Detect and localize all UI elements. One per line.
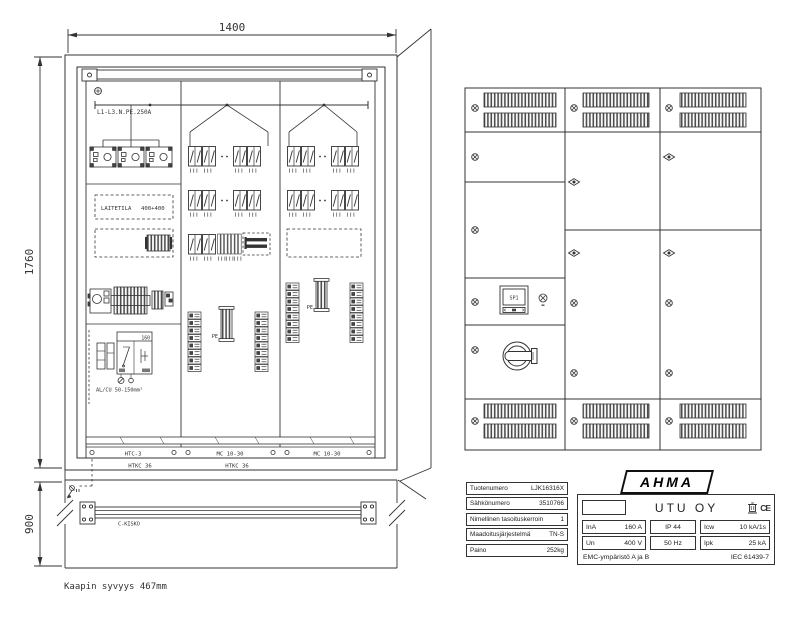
screw-icon (571, 370, 578, 377)
finned-block (111, 287, 150, 314)
rating-label: Icw (704, 524, 714, 531)
laitetila-size: 400+400 (141, 206, 165, 212)
breaker-icon (346, 191, 359, 211)
meter-device (88, 289, 111, 313)
spec-table: Tuotenumero LJK16316X Sähkönumero 351076… (466, 482, 568, 559)
rail-label-3: MC 10-30 (314, 452, 341, 458)
ratings-row-2: Un 400 V 50 Hz Ipk 25 kA (582, 536, 770, 550)
breaker-icon (302, 191, 315, 211)
spec-value: LJK16316X (531, 484, 564, 493)
spec-row: Maadoitusjärjestelmä TN-S (466, 528, 568, 541)
breaker-icon (203, 191, 216, 211)
screw-icon (472, 154, 479, 161)
breaker-icon (234, 191, 247, 211)
rating-cell: Ipk 25 kA (700, 536, 770, 550)
c-rail-label: C-KISKO (118, 522, 140, 528)
weee-bin-icon (747, 501, 758, 514)
dimension-height-1760: 1760 (23, 57, 62, 468)
dim-height-label: 1760 (23, 249, 36, 276)
dim-width-label: 1400 (219, 21, 246, 34)
screw-icon (571, 105, 578, 112)
terminal-strip (255, 312, 268, 372)
cable-spec: AL/CU 50-150mm² (96, 388, 143, 394)
breaker-icon (189, 235, 202, 255)
terminal-strip (286, 283, 299, 343)
frame-label-2: HTKC 36 (225, 464, 249, 470)
sp1-display: SP1 (500, 286, 528, 314)
rating-cell: IP 44 (650, 520, 696, 534)
nameplate-header: UTU OY CE (578, 495, 774, 518)
brand-logo: AHMA (620, 470, 714, 494)
screw-icon (472, 418, 479, 425)
spec-label: Sähkönumero (470, 499, 510, 508)
spec-label: Maadoitusjärjestelmä (470, 530, 530, 539)
terminal-strip (188, 312, 201, 372)
switch-rating: 160 (141, 336, 150, 342)
pe-label: PE (307, 305, 313, 311)
laitetila-label: LAITETILA (101, 206, 132, 212)
screw-icon (472, 347, 479, 354)
rating-label: Un (586, 540, 595, 547)
rating-value: 10 kA/1s (740, 524, 766, 531)
breaker-icon (332, 147, 345, 167)
spec-value: 252kg (547, 546, 564, 555)
spec-label: Tuotenumero (470, 484, 508, 493)
front-view: SP1 (465, 88, 761, 450)
ct-symbol (118, 147, 144, 167)
rating-cell: Icw 10 kA/1s (700, 520, 770, 534)
breaker-icon (288, 147, 301, 167)
dim-base-label: 900 (23, 514, 36, 534)
dimension-base-900: 900 (23, 482, 62, 566)
ct-symbol (146, 147, 172, 167)
breaker-icon (234, 147, 247, 167)
rating-value: 50 Hz (664, 540, 682, 547)
nameplate-footer: EMC-ympäristö A ja B IEC 61439-7 (578, 552, 774, 564)
breaker-icon (248, 147, 261, 167)
screw-icon (571, 300, 578, 307)
spec-value: 3510766 (539, 499, 564, 508)
screw-icon (666, 370, 673, 377)
cabinet-outline (65, 55, 397, 470)
spec-row: Nimellinen tasoituskerroin 1 (466, 513, 568, 526)
breaker-icon (203, 147, 216, 167)
c-rail: C-KISKO (80, 502, 376, 528)
spec-row: Sähkönumero 3510766 (466, 497, 568, 510)
ce-mark: CE (760, 503, 770, 513)
rail-label-2: MC 10-30 (217, 452, 244, 458)
breaker-icon (332, 191, 345, 211)
cabinet-open-door (397, 29, 431, 481)
sp1-label: SP1 (509, 296, 518, 302)
rating-value: IP 44 (665, 524, 681, 531)
rail-label-1: HTC-3 (125, 452, 142, 458)
frame-label-1: HTKC 36 (128, 464, 152, 470)
blank-plate (582, 500, 626, 515)
screw-icon (472, 105, 479, 112)
breaker-icon (346, 147, 359, 167)
emc-note: EMC-ympäristö A ja B (583, 554, 649, 561)
rating-cell: InA 160 A (582, 520, 646, 534)
spec-value: TN-S (549, 530, 564, 539)
rating-value: 400 V (624, 540, 642, 547)
rating-label: Ipk (704, 540, 713, 547)
breaker-icon (288, 191, 301, 211)
rating-label: InA (586, 524, 596, 531)
screw-icon (666, 418, 673, 425)
breaker-icon (189, 147, 202, 167)
depth-note: Kaapin syvyys 467mm (64, 582, 167, 592)
rating-cell: 50 Hz (650, 536, 696, 550)
spec-label: Nimellinen tasoituskerroin (470, 515, 543, 524)
screw-icon (571, 418, 578, 425)
rating-cell: Un 400 V (582, 536, 646, 550)
rating-value: 25 kA (749, 540, 766, 547)
standard-ref: IEC 61439-7 (731, 554, 769, 561)
spec-label: Paino (470, 546, 486, 555)
pe-label: PE (212, 334, 218, 340)
busbar-label: L1-L3.N.PE.250A (97, 109, 152, 116)
breaker-icon (189, 191, 202, 211)
breaker-icon (302, 147, 315, 167)
cad-drawing-sheet: 1400 1760 900 (0, 0, 800, 627)
screw-icon (666, 105, 673, 112)
dimension-width-1400: 1400 (68, 21, 396, 53)
small-device (165, 292, 173, 306)
screw-icon (666, 300, 673, 307)
screw-icon (472, 299, 479, 306)
breaker-icon (248, 191, 261, 211)
spec-row: Paino 252kg (466, 544, 568, 557)
terminal-strip (350, 283, 363, 343)
screw-icon (472, 227, 479, 234)
spec-row: Tuotenumero LJK16316X (466, 482, 568, 495)
breaker-icon (203, 235, 216, 255)
hatched-block (152, 291, 163, 309)
company-name: UTU OY (626, 501, 747, 515)
brand-name: AHMA (640, 474, 694, 490)
spec-value: 1 (560, 515, 564, 524)
nameplate-box: UTU OY CE InA 160 A IP 44 (577, 494, 775, 565)
nameplate-icons: CE (747, 501, 770, 514)
rating-value: 160 A (625, 524, 642, 531)
ratings-row-1: InA 160 A IP 44 Icw 10 kA/1s (582, 520, 770, 534)
ct-symbol (90, 147, 116, 167)
